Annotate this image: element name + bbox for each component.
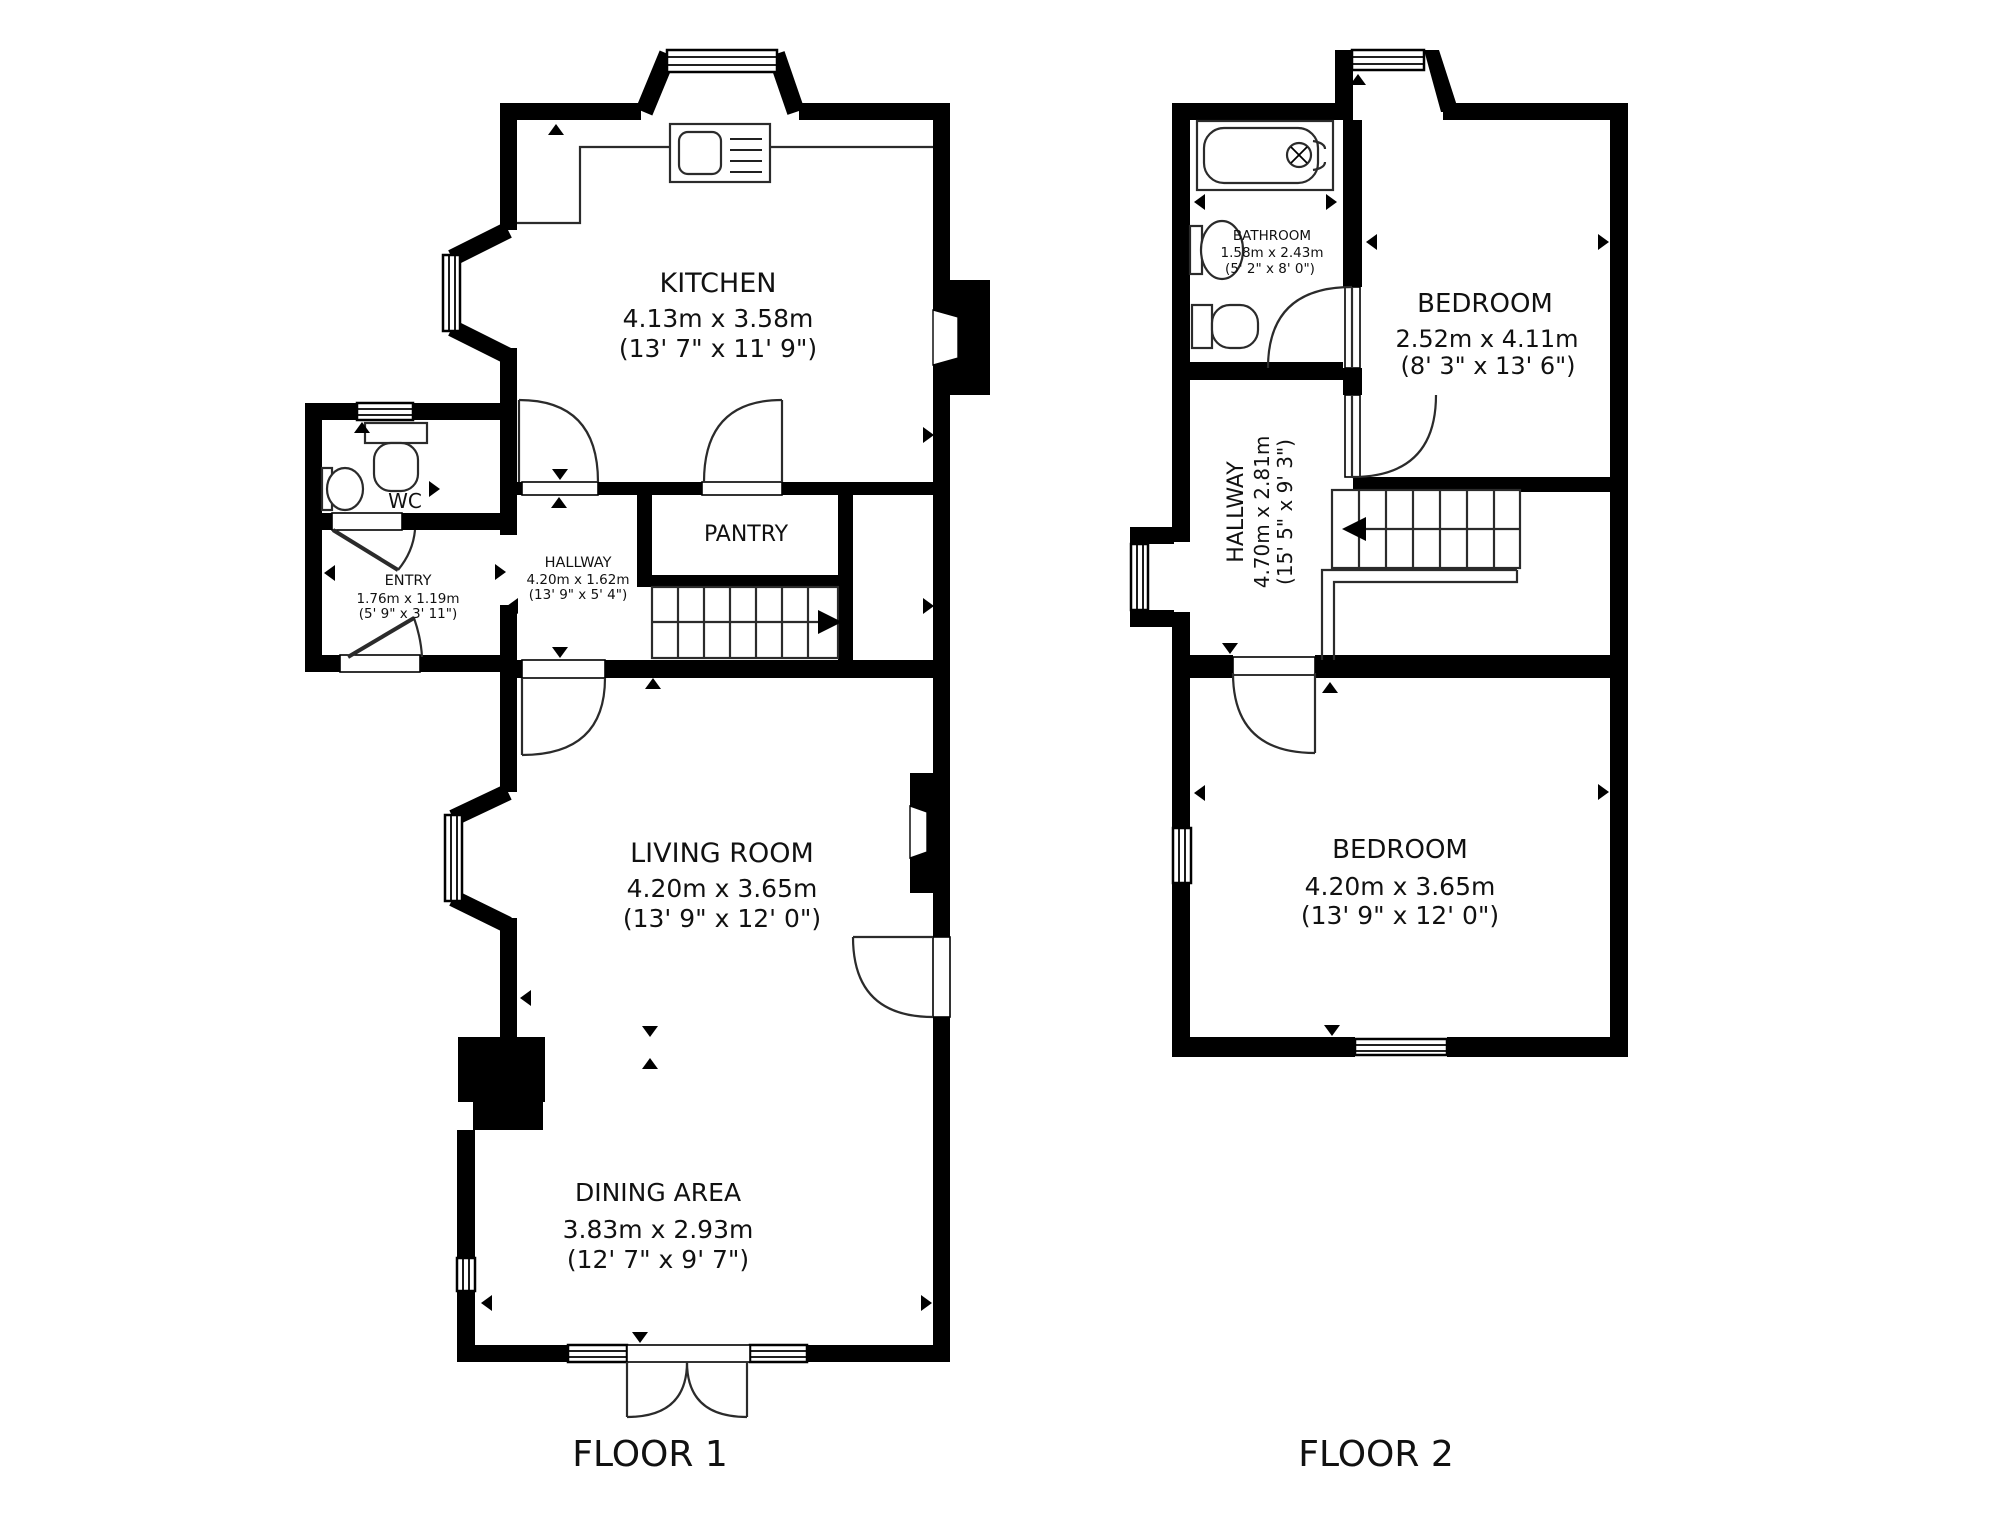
door-bathroom	[1268, 287, 1352, 368]
room-dim-dining-imperial: (12' 7" x 9' 7")	[567, 1245, 749, 1274]
room-label-hallway: HALLWAY	[545, 555, 612, 571]
floorplan-page: KITCHEN 4.13m x 3.58m (13' 7" x 11' 9") …	[0, 0, 2000, 1530]
room-label-kitchen: KITCHEN	[660, 268, 777, 299]
room-dim-entry-metric: 1.76m x 1.19m	[357, 591, 460, 607]
bathtub-icon	[1197, 121, 1333, 190]
french-doors	[627, 1362, 747, 1417]
window	[445, 815, 462, 901]
room-dim-hallway-metric: 4.20m x 1.62m	[527, 572, 630, 588]
room-dim-entry-imperial: (5' 9" x 3' 11")	[359, 606, 457, 622]
window	[457, 1258, 475, 1291]
room-dim-living-imperial: (13' 9" x 12' 0")	[623, 904, 821, 933]
window	[568, 1345, 627, 1362]
room-label-bathroom: BATHROOM	[1233, 228, 1311, 244]
toilet-icon	[1192, 305, 1258, 348]
room-dim-bedroom2-metric: 4.20m x 3.65m	[1305, 872, 1496, 901]
stair-banister	[1322, 570, 1517, 660]
room-dim-kitchen-metric: 4.13m x 3.58m	[623, 304, 814, 333]
door-living-right	[853, 937, 933, 1017]
room-dim-bathroom-metric: 1.58m x 2.43m	[1221, 245, 1324, 261]
floor2-labels: BATHROOM 1.58m x 2.43m (5' 2" x 8' 0") B…	[1221, 228, 1579, 1475]
fireplace-niche	[933, 310, 958, 365]
door-wc	[333, 530, 415, 570]
room-dim-kitchen-imperial: (13' 7" x 11' 9")	[619, 334, 817, 363]
room-dim-dining-metric: 3.83m x 2.93m	[563, 1215, 754, 1244]
room-label-wc: WC	[388, 489, 422, 513]
floor1-windows	[357, 50, 807, 1362]
door-bedroom1	[1352, 395, 1436, 477]
window	[357, 403, 413, 420]
fireplace-niche	[910, 806, 927, 858]
room-label-entry: ENTRY	[385, 573, 432, 589]
room-label-pantry: PANTRY	[704, 522, 789, 547]
floor1-caption: FLOOR 1	[572, 1434, 728, 1475]
door-front-entry	[348, 618, 422, 657]
room-label-dining: DINING AREA	[575, 1178, 741, 1207]
room-dim-bathroom-imperial: (5' 2" x 8' 0")	[1225, 261, 1315, 277]
room-label-bedroom2: BEDROOM	[1332, 835, 1468, 865]
room-dim-living-metric: 4.20m x 3.65m	[627, 874, 818, 903]
room-dim-hallway2-imperial: (15' 5" x 9' 3")	[1273, 439, 1297, 585]
door-living	[522, 678, 605, 755]
toilet-icon	[365, 423, 427, 491]
window	[1355, 1039, 1447, 1055]
room-dim-bedroom2-imperial: (13' 9" x 12' 0")	[1301, 901, 1499, 930]
hand-basin-icon	[322, 468, 363, 510]
room-label-living: LIVING ROOM	[630, 838, 814, 869]
chimney-breast	[458, 1037, 545, 1102]
floor1-plan: KITCHEN 4.13m x 3.58m (13' 7" x 11' 9") …	[305, 50, 990, 1475]
floor1-labels: KITCHEN 4.13m x 3.58m (13' 7" x 11' 9") …	[357, 268, 822, 1475]
floorplan-drawing: KITCHEN 4.13m x 3.58m (13' 7" x 11' 9") …	[0, 0, 2000, 1530]
window	[443, 255, 460, 331]
door-pantry	[704, 400, 782, 482]
stairs-icon	[1322, 490, 1520, 660]
window	[1131, 544, 1148, 610]
room-dim-bedroom1-imperial: (8' 3" x 13' 6")	[1400, 352, 1575, 380]
window	[667, 50, 777, 72]
window	[750, 1345, 807, 1362]
room-label-hallway2: HALLWAY	[1224, 461, 1249, 563]
floor2-plan: BATHROOM 1.58m x 2.43m (5' 2" x 8' 0") B…	[1130, 50, 1628, 1475]
kitchen-sink-icon	[670, 124, 770, 182]
room-dim-hallway-imperial: (13' 9" x 5' 4")	[529, 587, 627, 603]
room-dim-hallway2-metric: 4.70m x 2.81m	[1250, 436, 1274, 589]
room-label-bedroom1: BEDROOM	[1417, 289, 1553, 319]
floor2-caption: FLOOR 2	[1298, 1434, 1454, 1475]
room-dim-bedroom1-metric: 2.52m x 4.11m	[1395, 325, 1578, 353]
door-bedroom2	[1233, 673, 1315, 753]
floor1-walls	[305, 54, 990, 1362]
stairs-icon	[652, 587, 842, 658]
window	[1352, 50, 1424, 70]
window	[1173, 828, 1191, 883]
